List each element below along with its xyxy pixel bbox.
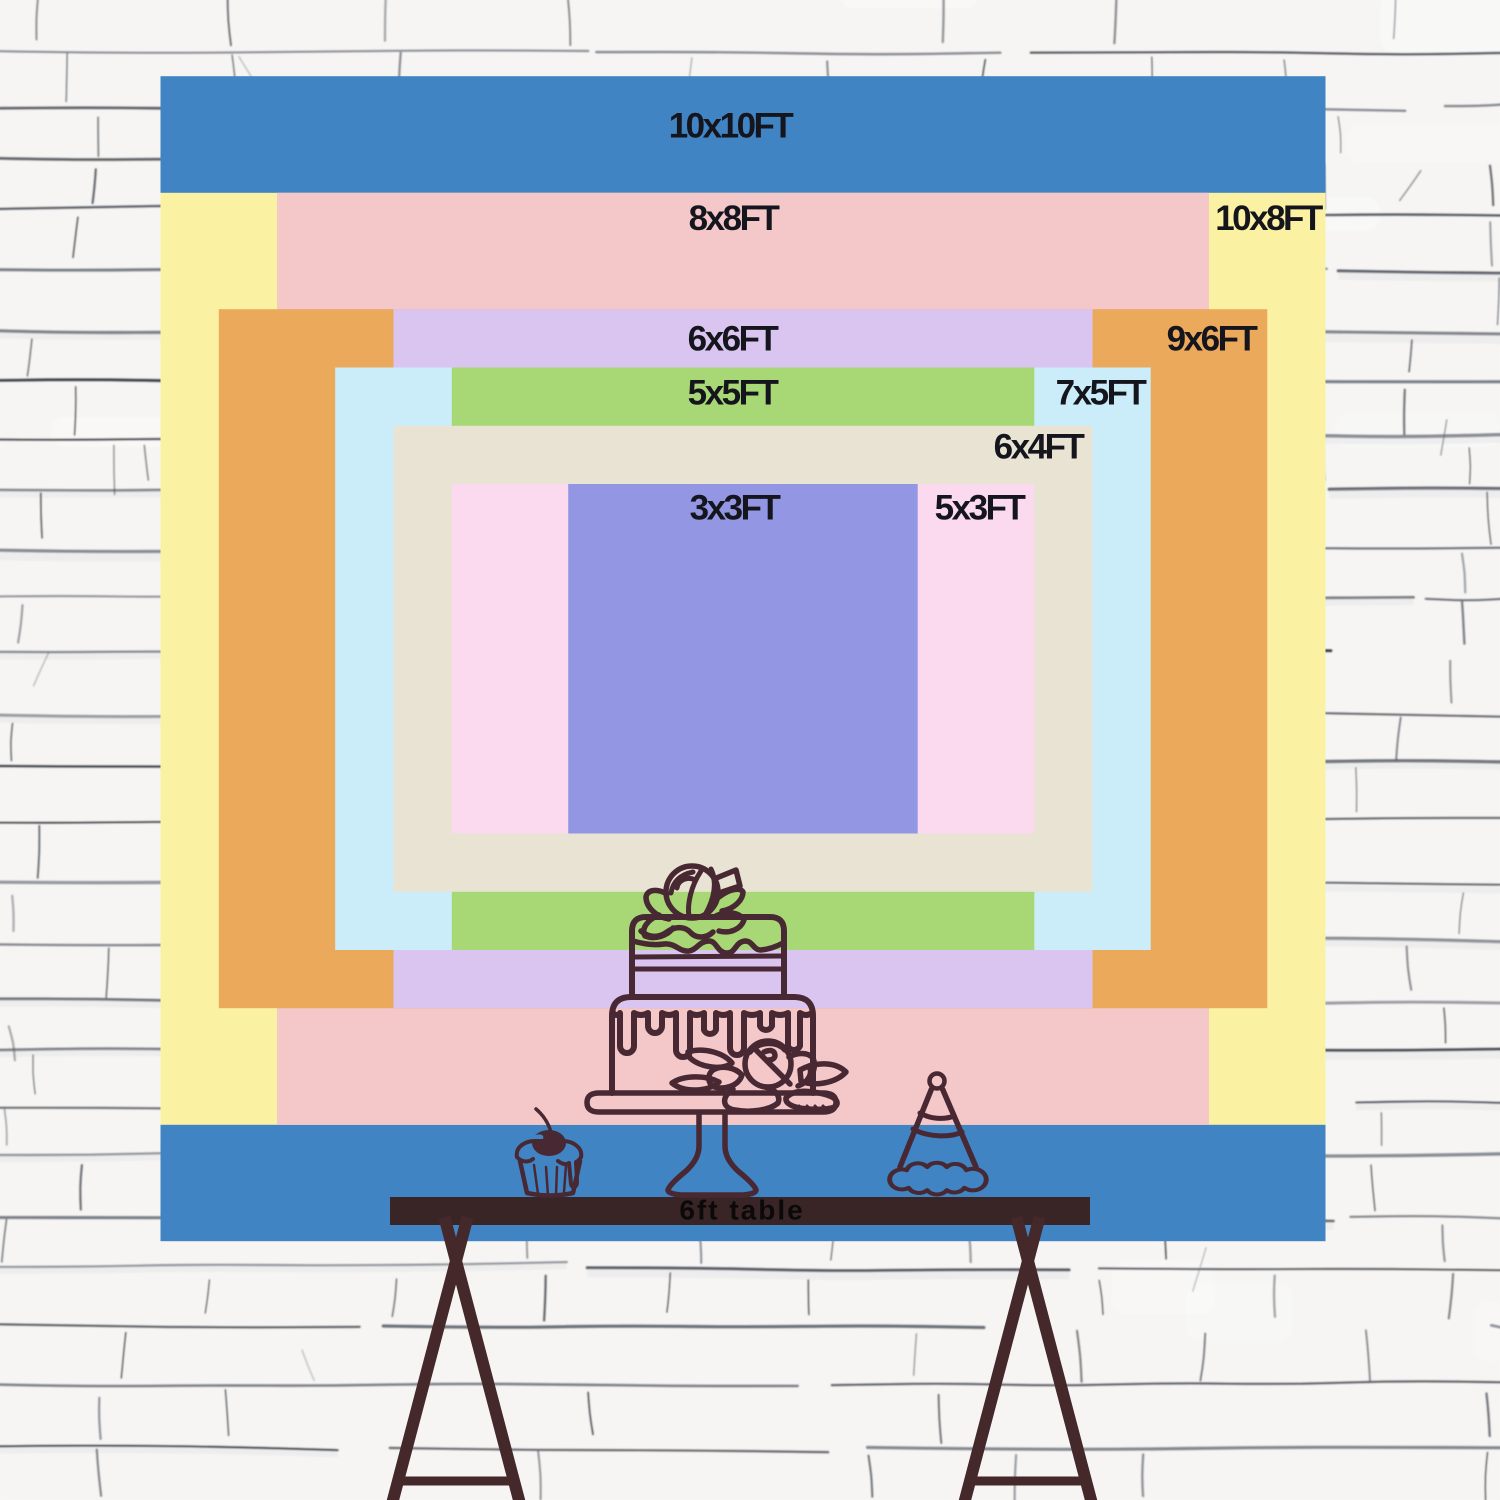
svg-text:3x3FT: 3x3FT: [690, 489, 781, 528]
svg-text:10x8FT: 10x8FT: [1215, 199, 1323, 238]
svg-text:5x5FT: 5x5FT: [688, 374, 779, 413]
svg-text:6x6FT: 6x6FT: [688, 320, 779, 359]
svg-text:8x8FT: 8x8FT: [689, 199, 780, 238]
svg-text:5x3FT: 5x3FT: [935, 489, 1026, 528]
svg-text:9x6FT: 9x6FT: [1167, 320, 1258, 359]
svg-text:6x4FT: 6x4FT: [994, 428, 1085, 467]
svg-text:10x10FT: 10x10FT: [669, 107, 794, 146]
svg-text:6ft table: 6ft table: [679, 1195, 804, 1226]
svg-text:7x5FT: 7x5FT: [1056, 374, 1147, 413]
